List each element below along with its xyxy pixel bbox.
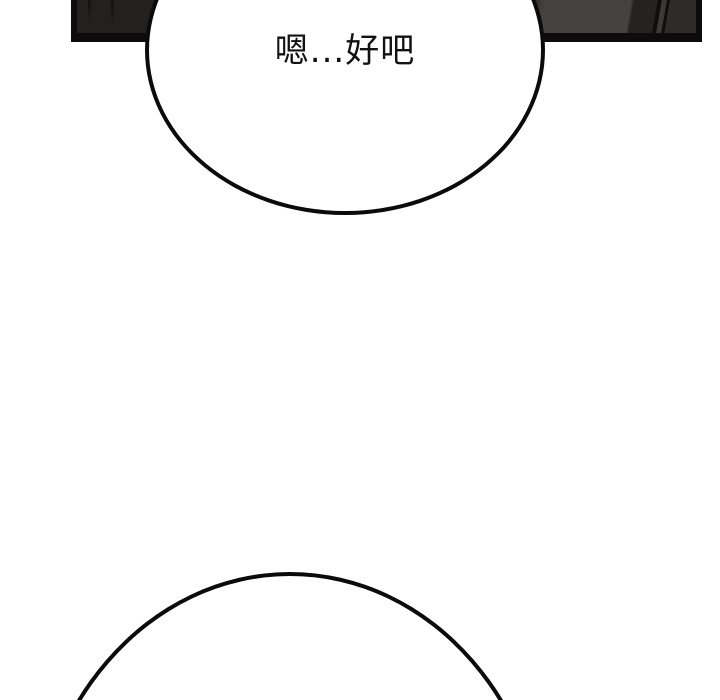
panel-art-streak bbox=[88, 0, 91, 26]
speech-bubble-bottom-partial bbox=[30, 572, 550, 700]
panel-art-streak bbox=[111, 0, 114, 26]
speech-bubble-text: 嗯...好吧 bbox=[145, 34, 545, 68]
comic-page: 嗯...好吧 bbox=[0, 0, 720, 700]
